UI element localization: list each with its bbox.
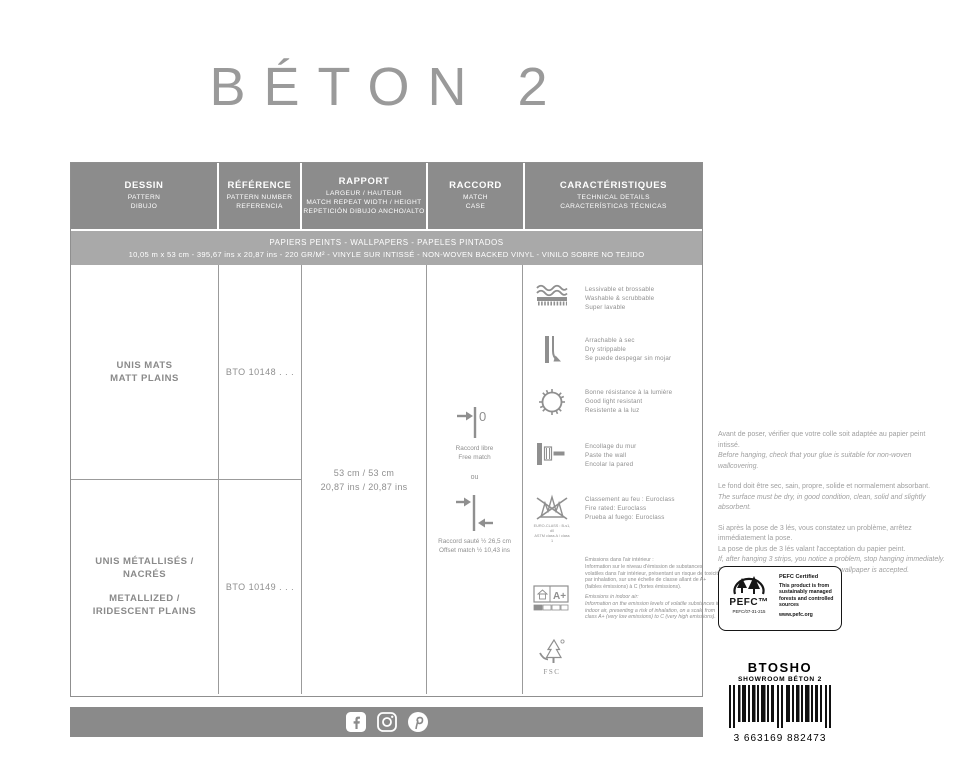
page-title: BÉTON 2 bbox=[70, 56, 705, 118]
dessin-row-2: UNIS MÉTALLISÉS / NACRÉS METALLIZED / IR… bbox=[71, 480, 218, 693]
note-glue: Avant de poser, vérifier que votre colle… bbox=[718, 430, 946, 472]
social-bar bbox=[70, 707, 703, 737]
characteristic-emissions: A+ Émissions dans l'air intérieur : Info… bbox=[533, 557, 721, 620]
pinterest-icon[interactable] bbox=[407, 711, 429, 733]
column-reference: BTO 10148 . . . BTO 10149 . . . bbox=[219, 265, 302, 694]
facebook-icon[interactable] bbox=[345, 711, 367, 733]
pefc-certification-box: PEFC™ PEFC/07-31-215 PEFC Certified This… bbox=[718, 566, 842, 631]
pefc-title: PEFC Certified bbox=[779, 574, 835, 580]
barcode-label: SHOWROOM BÉTON 2 bbox=[714, 676, 846, 683]
column-rapport: 53 cm / 53 cm 20,87 ins / 20,87 ins bbox=[302, 265, 427, 694]
dry-strippable-icon bbox=[540, 334, 564, 366]
offset-match-icon bbox=[452, 493, 498, 535]
barcode-icon bbox=[721, 685, 839, 729]
spec-table: DESSIN PATTERN DIBUJO RÉFÉRENCE PATTERN … bbox=[70, 162, 703, 697]
header-reference: RÉFÉRENCE PATTERN NUMBER REFERENCIA bbox=[219, 163, 300, 229]
characteristic-light-resistance: Bonne résistance à la lumière Good light… bbox=[533, 386, 721, 418]
instagram-icon[interactable] bbox=[376, 711, 398, 733]
header-caracteristiques: CARACTÉRISTIQUES TECHNICAL DETAILS CARAC… bbox=[525, 163, 702, 229]
column-caracteristiques: Lessivable et brossable Washable & scrub… bbox=[523, 265, 727, 694]
barcode-block: BTOSHO SHOWROOM BÉTON 2 3 663169 882473 bbox=[714, 660, 846, 744]
barcode-code: BTOSHO bbox=[714, 660, 846, 675]
characteristic-dry-strippable: Arrachable à sec Dry strippable Se puede… bbox=[533, 334, 721, 366]
header-dessin: DESSIN PATTERN DIBUJO bbox=[71, 163, 217, 229]
offset-match-label: Raccord sauté ½ 26,5 cm Offset match ½ 1… bbox=[438, 538, 511, 555]
characteristic-fire-rating: EURO-CLASS : B-s1, d0 ASTM class A / cla… bbox=[533, 493, 721, 543]
or-label: ou bbox=[471, 474, 479, 481]
pefc-body: This product is from sustainably managed… bbox=[779, 583, 835, 609]
pefc-logo-icon bbox=[731, 572, 767, 598]
svg-text:0: 0 bbox=[479, 409, 486, 424]
light-resistance-icon bbox=[536, 386, 568, 418]
free-match-label: Raccord libre Free match bbox=[456, 445, 494, 462]
product-type-band: PAPIERS PEINTS - WALLPAPERS - PAPELES PI… bbox=[71, 231, 702, 265]
spec-sheet-page: BÉTON 2 DESSIN PATTERN DIBUJO RÉFÉRENCE … bbox=[0, 0, 959, 759]
table-header-row: DESSIN PATTERN DIBUJO RÉFÉRENCE PATTERN … bbox=[71, 163, 702, 229]
table-body: UNIS MATS MATT PLAINS UNIS MÉTALLISÉS / … bbox=[71, 265, 702, 694]
paste-the-wall-icon bbox=[534, 440, 570, 468]
emissions-icon: A+ bbox=[533, 585, 571, 613]
column-raccord: 0 Raccord libre Free match ou bbox=[427, 265, 523, 694]
characteristic-fsc: FSC bbox=[533, 637, 721, 676]
pefc-cert-number: PEFC/07-31-215 bbox=[733, 609, 766, 614]
characteristic-paste-the-wall: Encollage du mur Paste the wall Encolar … bbox=[533, 440, 721, 469]
free-match-icon: 0 bbox=[452, 404, 498, 442]
reference-row-1: BTO 10148 . . . bbox=[219, 265, 301, 480]
pefc-logo-text: PEFC™ bbox=[729, 598, 768, 608]
column-dessin: UNIS MATS MATT PLAINS UNIS MÉTALLISÉS / … bbox=[71, 265, 219, 694]
hanging-notes: Avant de poser, vérifier que votre colle… bbox=[718, 430, 946, 586]
raccord-cell: 0 Raccord libre Free match ou bbox=[427, 265, 522, 694]
header-raccord: RACCORD MATCH CASE bbox=[428, 163, 523, 229]
pefc-url: www.pefc.org bbox=[779, 612, 835, 618]
characteristic-washable: Lessivable et brossable Washable & scrub… bbox=[533, 283, 721, 312]
header-rapport: RAPPORT LARGEUR / HAUTEUR MATCH REPEAT W… bbox=[302, 163, 426, 229]
rapport-cell: 53 cm / 53 cm 20,87 ins / 20,87 ins bbox=[302, 265, 426, 694]
barcode-digits: 3 663169 882473 bbox=[714, 733, 846, 744]
fire-rating-icon bbox=[534, 493, 570, 523]
washable-icon bbox=[534, 283, 570, 307]
note-surface: Le fond doit être sec, sain, propre, sol… bbox=[718, 482, 946, 514]
svg-text:A+: A+ bbox=[553, 591, 566, 602]
fsc-icon bbox=[537, 637, 567, 667]
dessin-row-1: UNIS MATS MATT PLAINS bbox=[71, 265, 218, 480]
reference-row-2: BTO 10149 . . . bbox=[219, 480, 301, 693]
